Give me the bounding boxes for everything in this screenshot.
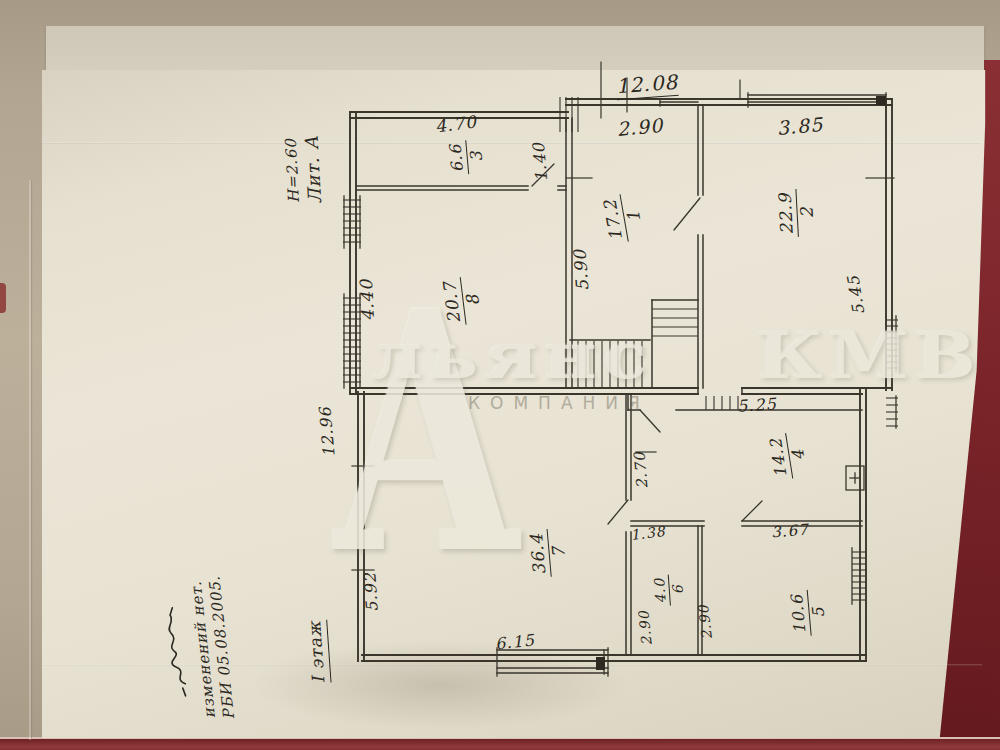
table-crease [29,180,31,740]
photo-of-floor-plan: { "watermark": { "initial": "А", "name":… [0,0,1000,750]
red-folder-bottom-strip [0,737,1000,750]
red-folder-left-speck [0,283,6,313]
plan-sheet-paper [42,70,988,738]
paper-fold-line [42,142,982,144]
paper-shadow-smudge [250,640,630,730]
